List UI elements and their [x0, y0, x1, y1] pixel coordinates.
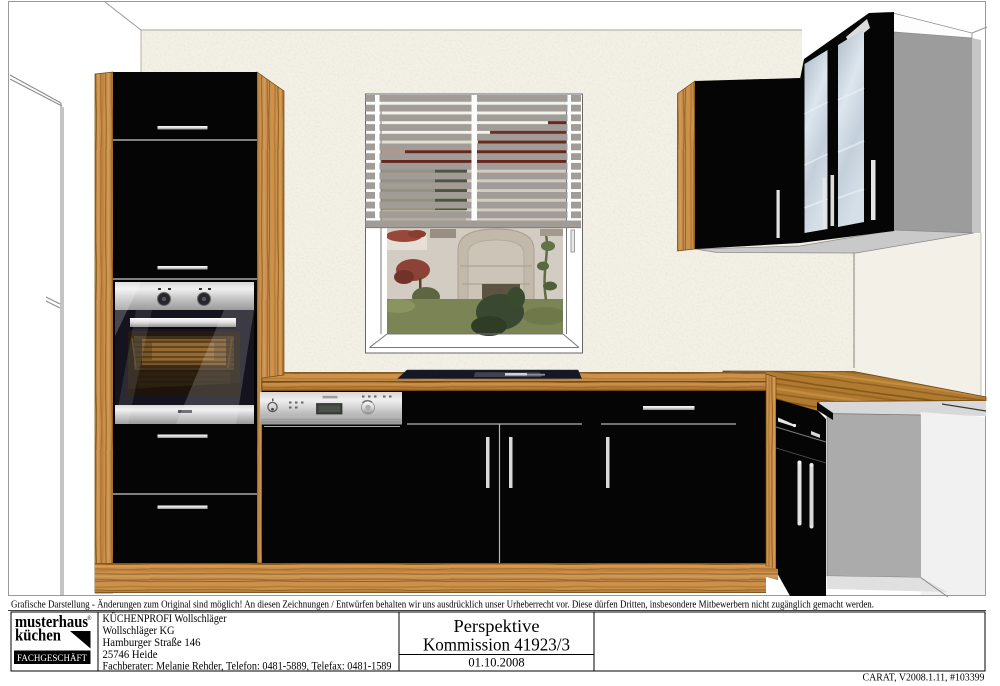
- svg-text:FACHGESCHÄFT: FACHGESCHÄFT: [17, 653, 87, 663]
- svg-text:01.10.2008: 01.10.2008: [468, 656, 524, 670]
- svg-text:Perspektive: Perspektive: [454, 616, 540, 636]
- svg-text:Kommission 41923/3: Kommission 41923/3: [423, 635, 570, 655]
- svg-text:25746 Heide: 25746 Heide: [103, 649, 158, 661]
- svg-text:CARAT, V2008.1.11, #103399: CARAT, V2008.1.11, #103399: [863, 672, 985, 684]
- svg-text:®: ®: [87, 615, 92, 622]
- svg-text:küchen: küchen: [15, 626, 61, 645]
- svg-text:Wollschläger KG: Wollschläger KG: [103, 625, 175, 637]
- svg-text:Fachberater: Melanie Rehder, T: Fachberater: Melanie Rehder, Telefon: 04…: [103, 661, 392, 673]
- svg-text:Hamburger Straße 146: Hamburger Straße 146: [103, 637, 201, 649]
- svg-text:KÜCHENPROFI Wollschläger: KÜCHENPROFI Wollschläger: [103, 613, 227, 625]
- svg-text:Grafische Darstellung - Änderu: Grafische Darstellung - Änderungen zum O…: [11, 599, 874, 611]
